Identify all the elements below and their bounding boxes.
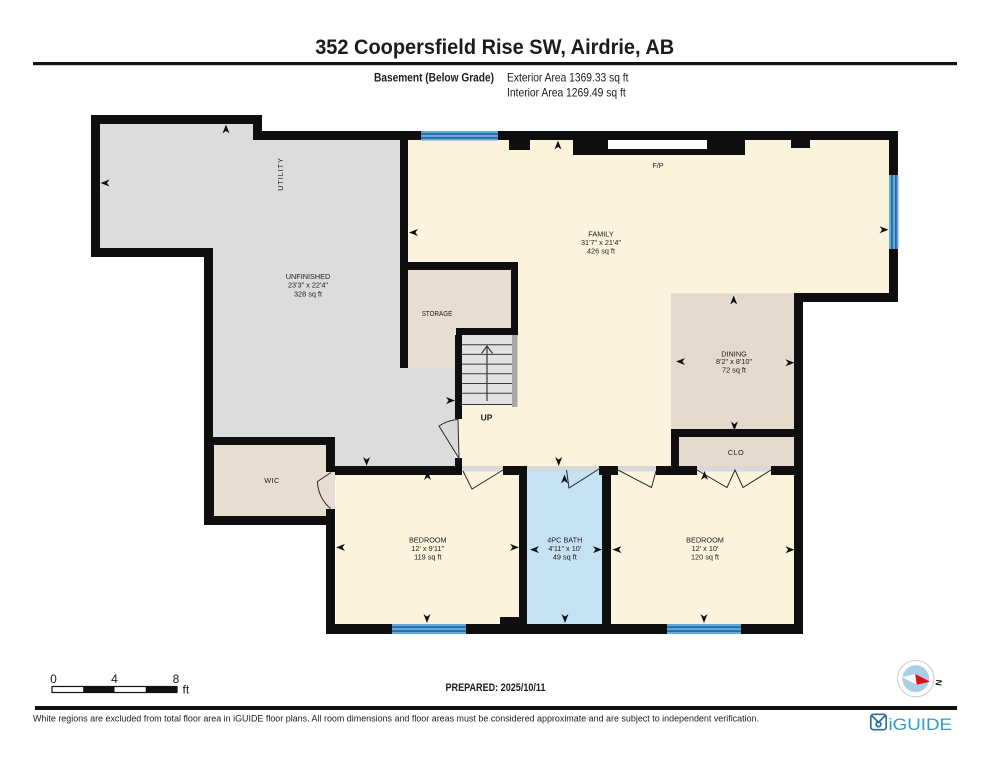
svg-text:ft: ft (183, 683, 190, 697)
svg-text:Exterior Area 1369.33 sq ft: Exterior Area 1369.33 sq ft (507, 71, 629, 85)
svg-text:4: 4 (111, 672, 118, 686)
svg-text:8: 8 (173, 672, 180, 686)
svg-text:Basement (Below Grade): Basement (Below Grade) (374, 71, 494, 85)
svg-text:352 Coopersfield Rise SW, Aird: 352 Coopersfield Rise SW, Airdrie, AB (315, 36, 674, 59)
svg-text:119 sq ft: 119 sq ft (414, 553, 441, 562)
svg-text:UP: UP (481, 413, 493, 423)
svg-text:UTILITY: UTILITY (276, 157, 285, 190)
svg-text:49 sq ft: 49 sq ft (553, 553, 577, 562)
svg-text:N: N (934, 679, 945, 686)
svg-text:0: 0 (50, 672, 57, 686)
svg-text:STORAGE: STORAGE (422, 311, 453, 318)
svg-text:328 sq ft: 328 sq ft (294, 289, 322, 298)
svg-text:White regions are excluded fro: White regions are excluded from total fl… (33, 714, 759, 724)
svg-text:Interior Area 1269.49 sq ft: Interior Area 1269.49 sq ft (507, 85, 626, 99)
svg-text:WIC: WIC (264, 476, 279, 485)
svg-text:PREPARED: 2025/10/11: PREPARED: 2025/10/11 (446, 682, 546, 694)
svg-text:CLO: CLO (728, 448, 744, 457)
svg-text:iGUIDE: iGUIDE (889, 716, 953, 734)
svg-text:426 sq ft: 426 sq ft (587, 247, 615, 256)
svg-text:72 sq ft: 72 sq ft (722, 366, 746, 375)
svg-text:23'3" x 22'4": 23'3" x 22'4" (288, 281, 328, 290)
svg-text:F/P: F/P (652, 161, 663, 170)
svg-text:UNFINISHED: UNFINISHED (286, 272, 331, 281)
svg-text:120 sq ft: 120 sq ft (691, 553, 719, 562)
